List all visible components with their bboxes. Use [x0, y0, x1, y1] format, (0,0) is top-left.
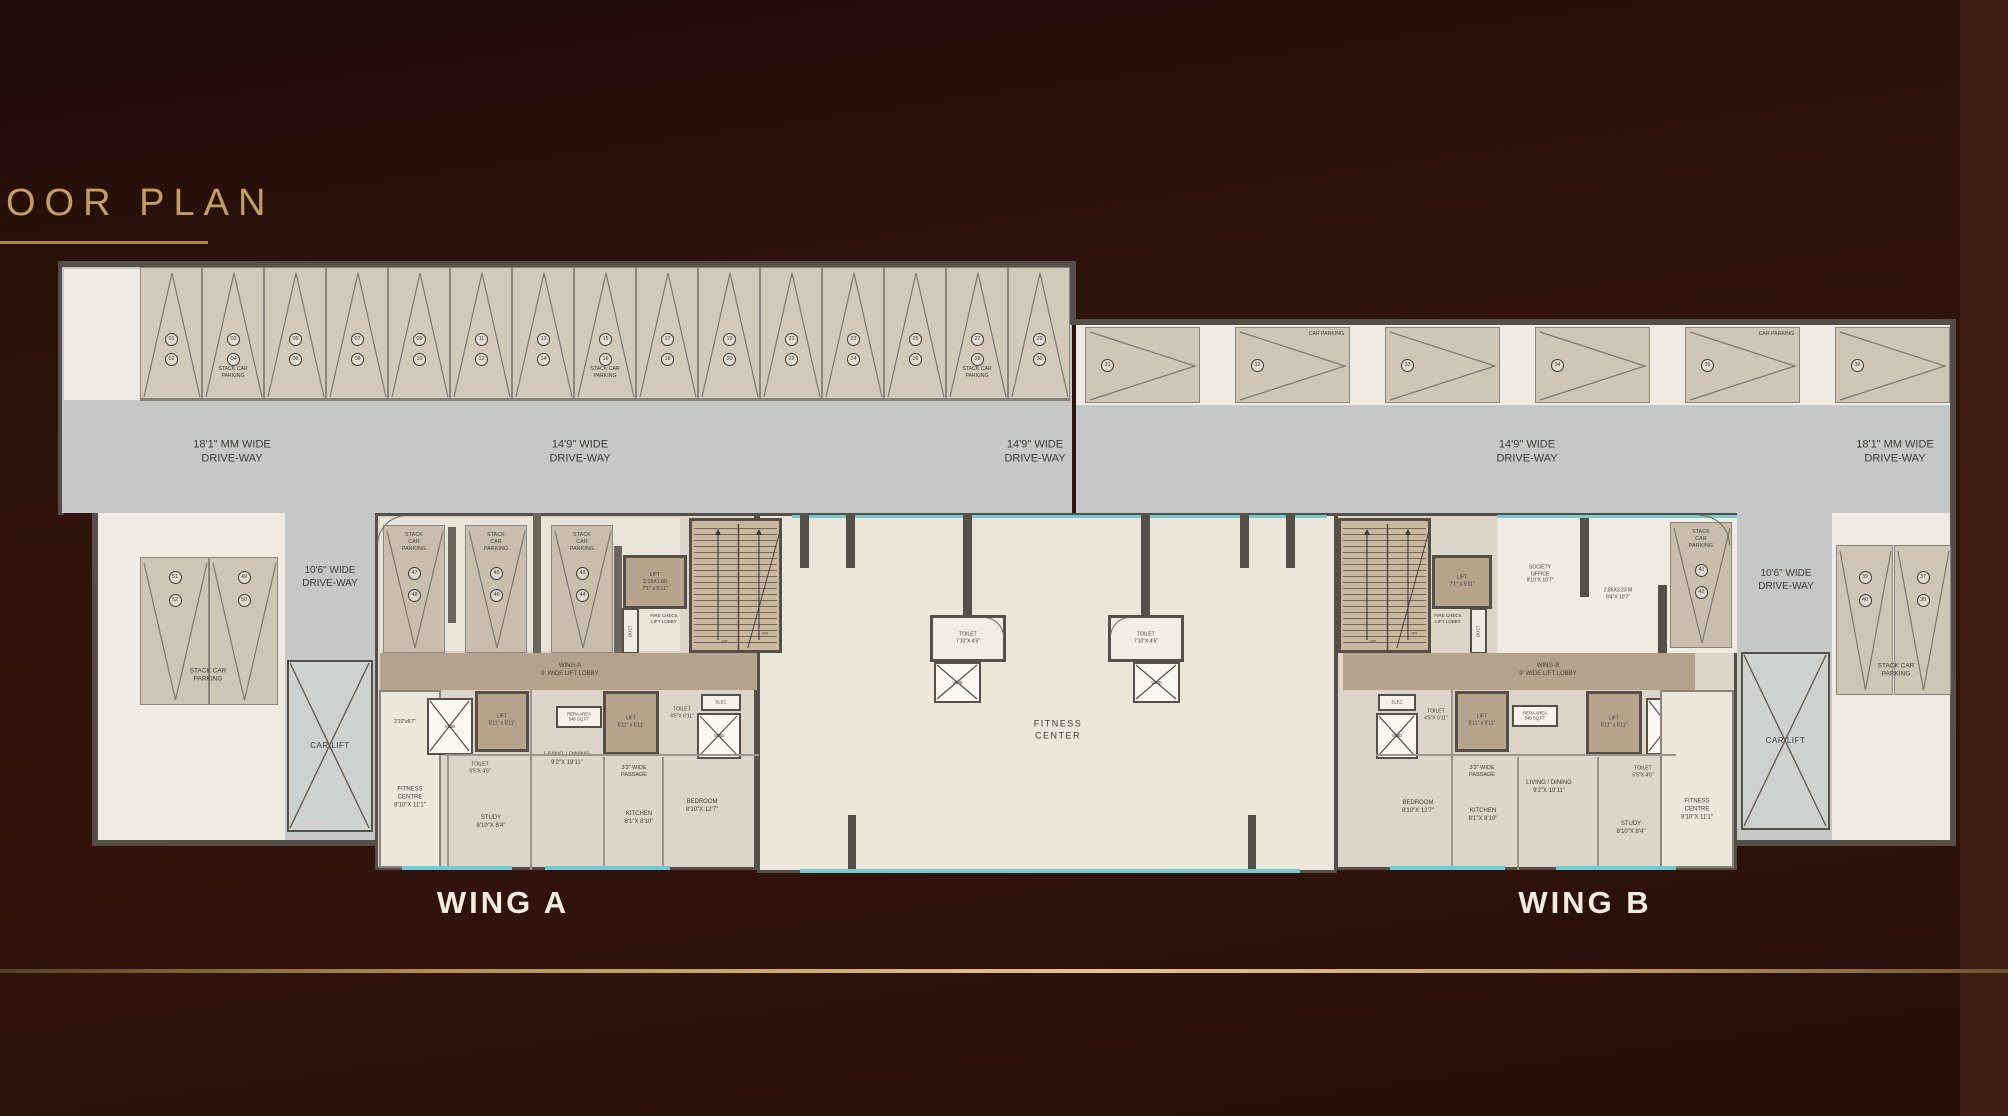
room-label: KITCHEN8'1"X 8'10" [1469, 808, 1498, 824]
plan-linework [1341, 521, 1434, 656]
stack-car-parking-bay: STACKCARPARKING4344 [551, 525, 613, 653]
stack-car-parking-bay: 2122 [760, 267, 822, 400]
parking-number: 46 [490, 589, 503, 602]
parking-number: 39 [1859, 571, 1872, 584]
parking-number: 32 [1251, 359, 1264, 372]
wall-stub [846, 513, 855, 568]
bay-label: STACK CARPARKING [203, 366, 263, 380]
wall-stub [448, 527, 456, 623]
stack-car-parking-bay: 1314 [512, 267, 574, 400]
window-strip [1390, 866, 1505, 870]
car-parking-bay: 32CAR PARKING [1235, 327, 1350, 403]
parking-number: 18 [661, 353, 674, 366]
parking-number: 02 [165, 353, 178, 366]
parking-number: 17 [661, 333, 674, 346]
dim-label: 2'10"x6'7" [394, 719, 416, 726]
lift-label: LIFT5'11" x 5'11" [1469, 714, 1496, 727]
parking-number: 33 [1401, 359, 1414, 372]
floor-plan: 01020304STACK CARPARKING0506070809101112… [0, 0, 2008, 1116]
stack-car-parking-bay: 1718 [636, 267, 698, 400]
driveway-label: 18'1" MM WIDEDRIVE-WAY [193, 438, 271, 467]
wall-stub [1240, 513, 1249, 568]
bay-label: CAR PARKING [1309, 331, 1344, 338]
parking-number: 19 [723, 333, 736, 346]
parking-number: 38 [1917, 594, 1930, 607]
room-label: TOILET5'5"X 4'6" [1632, 766, 1653, 779]
partition [1376, 754, 1676, 756]
car-lift-label: CAR LIFT [310, 741, 350, 751]
parking-number: 16 [599, 353, 612, 366]
stack-car-parking-bay: 0910 [388, 267, 450, 400]
room-label: TOILET4'5"X 6'11" [670, 707, 694, 720]
wing-lobby-label: WING-B9' WIDE LIFT LOBBY [1519, 663, 1576, 679]
elec-label: ELEC [1392, 699, 1403, 704]
plan-linework [692, 521, 785, 656]
stair-direction-label: UP [722, 638, 728, 643]
wall-stub [800, 513, 809, 568]
parking-number: 06 [289, 353, 302, 366]
parking-number: 27 [971, 333, 984, 346]
wall-stub [1580, 517, 1589, 597]
parking-number: 52 [169, 594, 182, 607]
lift-label: LIFT5'11" x 5'11" [1601, 716, 1628, 729]
parking-label: STACK CARPARKING [190, 668, 227, 685]
parking-number: 23 [847, 333, 860, 346]
parking-number: 28 [971, 353, 984, 366]
wall-stub [1248, 815, 1256, 873]
room-label: KITCHEN8'1"X 8'10" [625, 811, 654, 827]
stack-car-parking-bay: 1920 [698, 267, 760, 400]
fitness-centre-room [1660, 690, 1734, 868]
room-label: TOILET5'5"X 4'6" [469, 762, 490, 775]
void-label: VOID [445, 724, 456, 730]
parking-number: 31 [1101, 359, 1114, 372]
void-label: VOID [714, 733, 725, 739]
parking-number: 01 [165, 333, 178, 346]
parking-number: 44 [576, 589, 589, 602]
window-strip [402, 866, 512, 870]
parking-number: 41 [1695, 564, 1708, 577]
parking-number: 14 [537, 353, 550, 366]
parking-number: 37 [1917, 571, 1930, 584]
partition [1517, 757, 1519, 870]
partition [530, 690, 532, 870]
window-strip [545, 866, 670, 870]
fire-check-lobby-label: FIRE CHECKLIFT LOBBY [1434, 613, 1461, 625]
window-strip [800, 869, 1300, 873]
room-label: BEDROOM8'10"X 12'7" [686, 799, 718, 815]
fitness-center-label: FITNESSCENTER [1034, 718, 1083, 741]
partition [603, 757, 605, 870]
parking-number: 25 [909, 333, 922, 346]
duct-label: DUCT [1475, 625, 1480, 637]
parking-number: 12 [475, 353, 488, 366]
driveway-label: 14'9" WIDEDRIVE-WAY [549, 438, 610, 467]
walkway-strip-top-left [64, 269, 140, 400]
stack-car-parking-bay: 2526 [884, 267, 946, 400]
parking-number: 30 [1033, 353, 1046, 366]
stack-car-parking-bay: 0304STACK CARPARKING [202, 267, 264, 400]
bay-label: STACKCARPARKING [466, 532, 526, 552]
driveway-label: 14'9" WIDEDRIVE-WAY [1496, 438, 1557, 467]
parking-number: 47 [408, 567, 421, 580]
parking-number: 36 [1851, 359, 1864, 372]
parking-number: 09 [413, 333, 426, 346]
parking-number: 07 [351, 333, 364, 346]
elec-label: ELEC [716, 699, 727, 704]
stack-car-parking-bay: 0506 [264, 267, 326, 400]
parking-number: 51 [169, 571, 182, 584]
parking-number: 11 [475, 333, 488, 346]
room-label: STUDY8'10"X 8'4" [477, 815, 506, 831]
parking-number: 48 [408, 589, 421, 602]
wall-stub [1658, 585, 1667, 653]
lift-label: LIFT7'1" x 5'11" [1449, 574, 1474, 588]
stair-direction-label: DN [1411, 630, 1417, 635]
lift-label: LIFT5'11" x 5'11" [489, 714, 516, 727]
void-label: VOID [1151, 680, 1162, 686]
parking-number: 35 [1701, 359, 1714, 372]
parking-number: 03 [227, 333, 240, 346]
stair-direction-label: DN [762, 630, 768, 635]
car-parking-bay: 33 [1385, 327, 1500, 403]
parking-number: 22 [785, 353, 798, 366]
stack-car-parking-bay: 1112 [450, 267, 512, 400]
driveway-label: 10'6" WIDEDRIVE-WAY [302, 564, 358, 590]
void-label: VOID [1392, 733, 1403, 739]
room-label: TOILET7'10"X 4'5" [956, 632, 980, 645]
car-lift-label: CAR LIFT [1766, 736, 1806, 746]
room-label: STUDY8'10"X 8'4" [1617, 821, 1646, 837]
wing-lobby-label: WING-A9' WIDE LIFT LOBBY [541, 663, 598, 679]
parking-number: 04 [227, 353, 240, 366]
bay-label: CAR PARKING [1759, 331, 1794, 338]
stack-car-parking-bay: 2728STACK CARPARKING [946, 267, 1008, 400]
parking-number: 34 [1551, 359, 1564, 372]
stack-car-parking-bay: STACKCARPARKING4546 [465, 525, 527, 653]
wing-a-label: WING A [437, 885, 569, 921]
wing-b-label: WING B [1518, 885, 1651, 921]
parking-number: 21 [785, 333, 798, 346]
wall-stub [1286, 513, 1295, 568]
void-label: VOID [952, 680, 963, 686]
parking-label: STACK CARPARKING [1878, 663, 1915, 680]
car-parking-bay: 36 [1835, 327, 1950, 403]
car-parking-bay: 31 [1085, 327, 1200, 403]
room-label: TOILET7'10"X 4'5" [1134, 632, 1158, 645]
partition [447, 756, 449, 868]
partition [662, 757, 664, 870]
driveway-label: 14'9" WIDEDRIVE-WAY [1004, 438, 1065, 467]
duct-label: DUCT [627, 625, 632, 637]
stack-car-parking-bay: 1516STACK CARPARKING [574, 267, 636, 400]
parking-number: 45 [490, 567, 503, 580]
stack-car-parking-bay: 2324 [822, 267, 884, 400]
wall-stub [533, 513, 541, 653]
walkway-strip-top-right [1076, 325, 1950, 405]
room-label: FITNESSCENTRE8'10"X 11'1" [394, 786, 426, 809]
room-label: BEDROOM8'10"X 12'7" [1402, 800, 1434, 816]
stack-car-parking-bay: 0102 [140, 267, 202, 400]
partition [1597, 757, 1599, 870]
parking-number: 20 [723, 353, 736, 366]
bay-label: STACK CARPARKING [947, 366, 1007, 380]
room-label: 3'3" WIDEPASSAGE [621, 765, 647, 779]
parking-floor-plan-canvas: OOR PLAN 01020304STACK CARPARKING0506070… [0, 0, 2008, 1116]
stair-direction-label: UP [1371, 638, 1377, 643]
driveway-label: 18'1" MM WIDEDRIVE-WAY [1856, 438, 1934, 467]
parking-number: 49 [238, 571, 251, 584]
bay-label: STACK CARPARKING [575, 366, 635, 380]
parking-number: 26 [909, 353, 922, 366]
parking-number: 43 [576, 567, 589, 580]
partition [445, 754, 759, 756]
wall-stub [1141, 513, 1150, 617]
room-label: FITNESSCENTRE8'10"X 11'1" [1681, 798, 1713, 821]
room-label: TOILET4'5"X 6'11" [1424, 709, 1448, 722]
stack-car-parking-bay: 2930 [1008, 267, 1070, 400]
wall-under-top-bays [140, 398, 1070, 401]
rera-area-label: RERA AREA546 SQ.FT [1523, 711, 1547, 722]
parking-number: 15 [599, 333, 612, 346]
stack-car-parking-bay: 0708 [326, 267, 388, 400]
parking-number: 08 [351, 353, 364, 366]
parking-number: 05 [289, 333, 302, 346]
room-label: 3'3" WIDEPASSAGE [1469, 765, 1495, 779]
rera-area-label: RERA AREA546 SQ.FT [567, 712, 591, 723]
bottom-wall-left [92, 840, 380, 846]
lift-label: LIFT5'11" x 5'11" [618, 716, 645, 729]
lift-label: LIFT2.15X1.607'1" x 5'11" [642, 572, 667, 592]
car-parking-bay: 34 [1535, 327, 1650, 403]
bottom-wall-right [1735, 840, 1956, 846]
parking-number: 13 [537, 333, 550, 346]
gold-divider-line [0, 969, 2008, 973]
parking-number: 40 [1859, 594, 1872, 607]
wall-stub [614, 546, 622, 653]
room-label: SOCIETYOFFICE9'10"X 10'7" [1527, 564, 1554, 584]
parking-number: 50 [238, 594, 251, 607]
wall-stub [848, 815, 856, 873]
parking-number: 10 [413, 353, 426, 366]
wall-stub [963, 513, 972, 617]
parking-number: 29 [1033, 333, 1046, 346]
window-strip [1556, 866, 1676, 870]
room-label: LIVING / DINING9'2"X 19'11" [1526, 780, 1572, 796]
parking-number: 24 [847, 353, 860, 366]
dim-label: 2.85X3.23 M9'4"X 10'7" [1604, 588, 1632, 601]
driveway-label: 10'6" WIDEDRIVE-WAY [1758, 567, 1814, 593]
car-parking-bay: 35CAR PARKING [1685, 327, 1800, 403]
fire-check-lobby-label: FIRE CHECKLIFT LOBBY [650, 613, 677, 625]
parking-number: 42 [1695, 586, 1708, 599]
bay-label: STACKCARPARKING [552, 532, 612, 552]
partition [1451, 690, 1453, 870]
